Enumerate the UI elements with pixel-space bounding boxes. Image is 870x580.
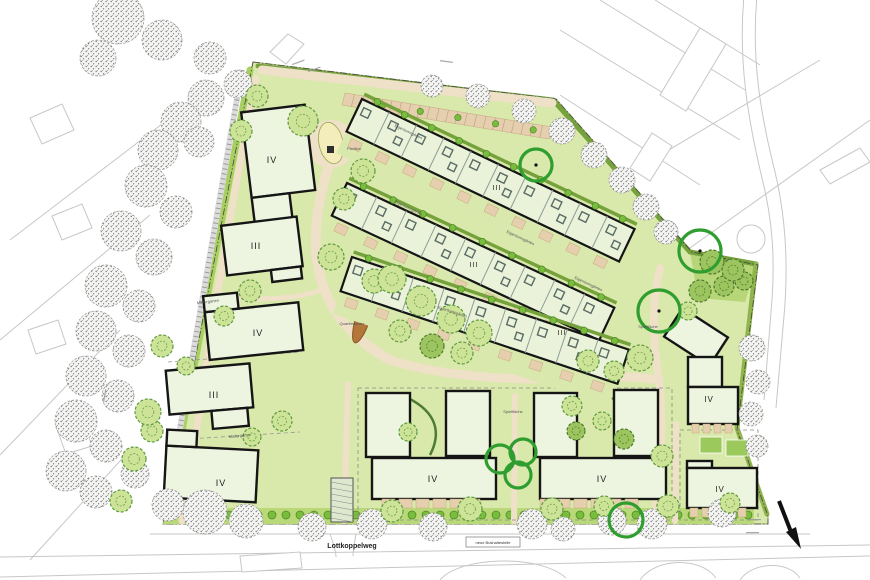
existing-tree-icon — [419, 513, 447, 541]
existing-tree-icon — [80, 40, 116, 76]
existing-tree-icon — [739, 335, 765, 361]
illegible-note — [748, 519, 761, 520]
plan-annotation: Pavillon — [347, 146, 361, 151]
bush — [450, 511, 458, 519]
tree-icon — [614, 429, 634, 449]
existing-tree-icon — [55, 400, 97, 442]
building-footprint — [446, 391, 490, 456]
tree-icon — [318, 244, 344, 270]
terrace — [714, 424, 721, 433]
building-footprint — [688, 357, 722, 387]
existing-tree-icon — [90, 430, 122, 462]
tree-icon — [135, 399, 161, 425]
existing-tree-icon — [66, 356, 106, 396]
existing-tree-icon — [549, 118, 575, 144]
building-footprint — [271, 266, 302, 282]
existing-tree-icon — [101, 211, 141, 251]
tree-icon — [562, 396, 582, 416]
building-storeys-label: III — [493, 185, 502, 192]
play-court — [700, 437, 722, 453]
building-storeys-label: III — [251, 241, 262, 251]
tree-icon — [351, 159, 375, 183]
building-storeys-label: IV — [253, 328, 264, 338]
tree-icon — [239, 280, 261, 302]
existing-tree-icon — [136, 239, 172, 275]
existing-tree-icon — [298, 513, 326, 541]
existing-tree-icon — [80, 476, 112, 508]
tree-icon — [177, 357, 195, 375]
terrace — [692, 424, 699, 433]
tree-icon — [151, 335, 173, 357]
tree-icon — [389, 320, 411, 342]
terrace — [725, 424, 732, 433]
tree-icon — [689, 280, 711, 302]
tree-icon — [406, 286, 436, 316]
tree-icon — [651, 445, 673, 467]
existing-tree-icon — [184, 127, 214, 157]
ring-center-dot — [534, 163, 537, 166]
tree-icon — [657, 495, 679, 517]
existing-tree-icon — [46, 451, 86, 491]
existing-tree-icon — [466, 84, 490, 108]
terrace — [574, 499, 587, 508]
bush — [268, 511, 276, 519]
existing-tree-icon — [102, 380, 134, 412]
existing-tree-icon — [160, 196, 192, 228]
building-storeys-label: IV — [704, 395, 714, 404]
existing-tree-icon — [152, 489, 184, 521]
existing-tree-icon — [746, 435, 768, 457]
tree-icon — [122, 447, 146, 471]
tree-icon — [272, 411, 292, 431]
existing-tree-icon — [609, 167, 635, 193]
tree-icon — [604, 361, 624, 381]
tree-icon — [288, 106, 318, 136]
tree-icon — [567, 422, 585, 440]
existing-tree-icon — [512, 99, 536, 123]
existing-tree-icon — [85, 265, 127, 307]
plan-annotation: Spielfläche — [638, 324, 658, 329]
existing-tree-icon — [183, 490, 227, 534]
building-storeys-label: III — [209, 390, 220, 400]
existing-tree-icon — [138, 130, 178, 170]
existing-tree-icon — [551, 517, 575, 541]
tree-icon — [214, 306, 234, 326]
building-storeys-label: IV — [715, 485, 725, 494]
existing-tree-icon — [194, 42, 226, 74]
tree-icon — [627, 345, 653, 371]
existing-tree-icon — [739, 402, 763, 426]
street-name-label: Lottkoppelweg — [327, 543, 376, 550]
bush — [492, 121, 498, 127]
terrace — [738, 508, 746, 517]
tree-icon — [451, 342, 473, 364]
existing-tree-icon — [125, 165, 167, 207]
tree-icon — [541, 498, 563, 520]
bus-stop-label: neue Bushaltestelle — [476, 540, 512, 545]
tree-icon — [458, 497, 482, 521]
terrace — [690, 508, 698, 517]
terrace — [416, 499, 429, 508]
context-building — [240, 552, 302, 572]
tree-icon — [679, 302, 697, 320]
bush — [492, 511, 500, 519]
existing-tree-icon — [229, 504, 263, 538]
tree-icon — [399, 423, 417, 441]
tree-icon — [230, 120, 252, 142]
bush — [576, 511, 584, 519]
tree-icon — [593, 412, 611, 430]
building — [446, 391, 490, 456]
terrace — [433, 499, 446, 508]
building-storeys-label: III — [558, 330, 567, 337]
bush — [282, 511, 290, 519]
terrace — [703, 424, 710, 433]
building-footprint — [688, 387, 738, 424]
play-court — [726, 440, 748, 456]
tree-icon — [110, 490, 132, 512]
plan-annotation: Spielfläche — [503, 409, 523, 414]
tree-icon — [466, 320, 492, 346]
bush — [417, 108, 423, 114]
existing-tree-icon — [746, 370, 770, 394]
ring-center-dot — [657, 309, 660, 312]
building-storeys-label: IV — [267, 155, 278, 165]
tree-icon — [381, 500, 403, 522]
existing-tree-icon — [654, 220, 678, 244]
existing-tree-icon — [581, 142, 607, 168]
building-footprint — [166, 430, 197, 448]
plan-annotation: Quartiersplatz — [340, 321, 365, 326]
building-footprint — [211, 408, 248, 429]
existing-tree-icon — [123, 290, 155, 322]
existing-tree-icon — [142, 20, 182, 60]
existing-tree-icon — [633, 194, 659, 220]
existing-tree-icon — [76, 311, 116, 351]
building-storeys-label: IV — [597, 474, 608, 484]
tree-icon — [577, 350, 599, 372]
bush — [408, 511, 416, 519]
ring-center-dot — [698, 249, 701, 252]
existing-tree-icon — [421, 75, 443, 97]
bush — [455, 114, 461, 120]
tree-icon — [378, 265, 406, 293]
tree-icon — [720, 493, 740, 513]
illegible-note — [746, 532, 759, 533]
building-storeys-label: IV — [428, 474, 439, 484]
tree-icon — [420, 334, 444, 358]
site-plan-drawing: IVIIIIVIIIIVIIIIIIIIIIVIVIVIVQuartierspl… — [0, 0, 870, 580]
pavilion — [327, 146, 334, 153]
tree-icon — [722, 259, 744, 281]
site-plan-page: IVIIIIVIIIIVIIIIIIIIIIVIVIVIVQuartierspl… — [0, 0, 870, 580]
bush — [530, 127, 536, 133]
tree-icon — [246, 85, 268, 107]
building-storeys-label: IV — [216, 478, 227, 488]
existing-tree-icon — [113, 335, 145, 367]
building-storeys-label: III — [470, 262, 479, 269]
tree-icon — [333, 188, 355, 210]
